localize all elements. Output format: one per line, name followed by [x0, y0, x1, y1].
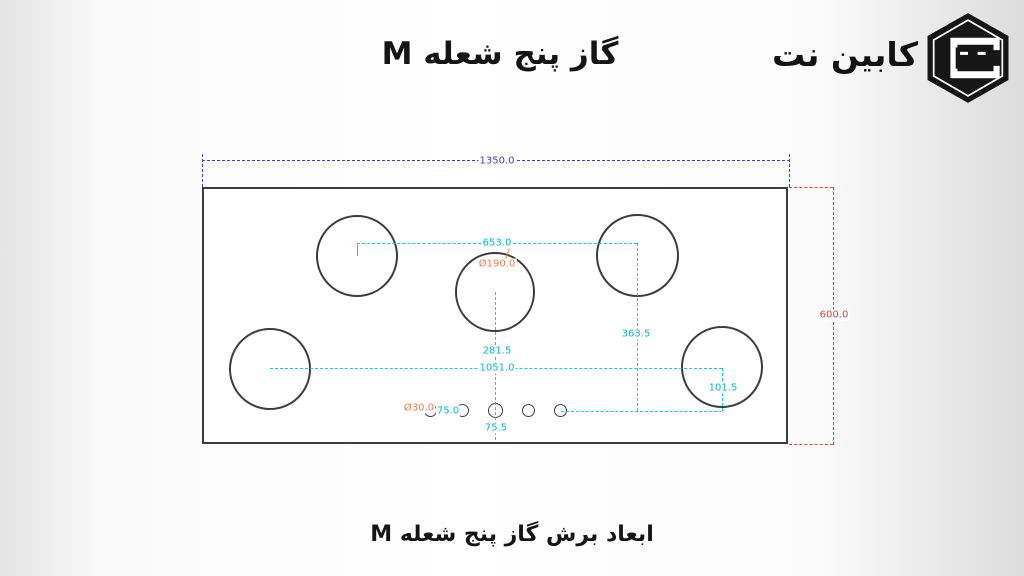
- width-dim-ext-left: [202, 154, 203, 187]
- knob-row-line: [561, 411, 722, 412]
- height-dim-ext-bottom: [789, 444, 833, 445]
- overall-height-label: 600.0: [819, 310, 850, 321]
- brand-logo: کابین نت: [772, 12, 1012, 104]
- knob-diameter-label: Ø30.0: [403, 403, 435, 414]
- diagram-caption: ابعاد برش گاز پنج شعله M: [0, 522, 1024, 547]
- knob-bottom-label: 75.5: [484, 423, 508, 434]
- top-spacing-label: 653.0: [482, 238, 513, 249]
- width-dim-ext-right: [789, 154, 790, 187]
- burner-bottom-left: [229, 328, 311, 410]
- height-dim-ext-top: [789, 187, 833, 188]
- overall-width-label: 1350.0: [479, 156, 516, 167]
- right-vertical-line: [637, 243, 638, 411]
- burner-top-left: [316, 215, 398, 297]
- hexagon-cabinet-icon: [924, 12, 1012, 104]
- knob-offset-label: 101.5: [708, 383, 739, 394]
- burner-diameter-label: Ø190.0: [478, 259, 517, 270]
- page-background: گاز پنج شعله M کابین نت: [0, 0, 1024, 576]
- center-offset-label: 281.5: [482, 346, 513, 357]
- right-offset-label: 363.5: [621, 329, 652, 340]
- knob-spacing-label: 75.0: [436, 406, 460, 417]
- bottom-spacing-label: 1051.0: [479, 363, 516, 374]
- brand-name: کابین نت: [772, 35, 918, 82]
- top-left-center-tick: [357, 243, 358, 256]
- knob-4: [522, 404, 535, 417]
